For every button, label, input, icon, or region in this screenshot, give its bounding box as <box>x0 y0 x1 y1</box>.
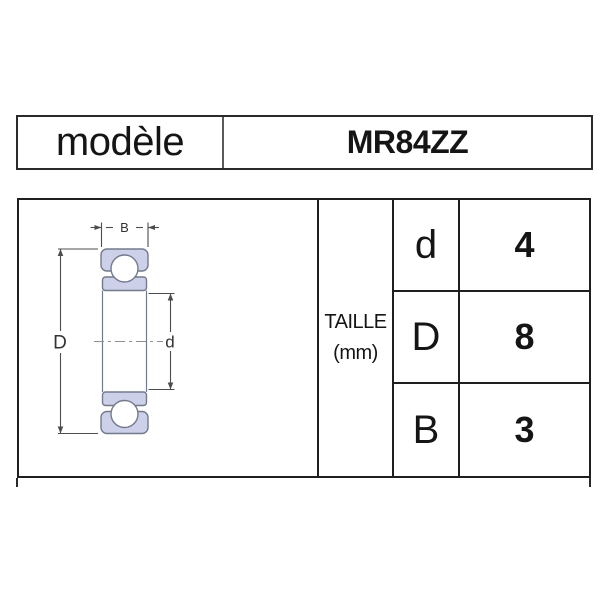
width-dimension-label: B <box>120 220 129 235</box>
value-D: 8 <box>460 292 589 384</box>
dimension-table: B D d TAILLE (mm) d 4 D 8 B 3 <box>17 198 591 478</box>
dimension-grid: d 4 D 8 B 3 <box>394 200 589 476</box>
size-header-cell: TAILLE (mm) <box>319 200 394 476</box>
model-table: modèle MR84ZZ <box>16 115 593 170</box>
model-value: MR84ZZ <box>224 117 591 168</box>
value-B: 3 <box>460 384 589 476</box>
value-d: 4 <box>460 200 589 292</box>
product-spec-sheet: modèle MR84ZZ <box>0 0 600 600</box>
size-header-line1: TAILLE <box>324 307 386 338</box>
param-D: D <box>394 292 460 384</box>
bore-diameter-dimension-label: d <box>165 333 174 352</box>
param-d: d <box>394 200 460 292</box>
table-border-tail-right <box>589 478 591 487</box>
bearing-drawing-cell: B D d <box>19 200 319 476</box>
table-border-tail-left <box>16 478 18 487</box>
bearing-cross-section-diagram: B D d <box>19 200 317 476</box>
size-header-line2: (mm) <box>333 338 378 369</box>
model-label: modèle <box>18 117 224 168</box>
outer-diameter-dimension-label: D <box>53 333 67 354</box>
param-B: B <box>394 384 460 476</box>
